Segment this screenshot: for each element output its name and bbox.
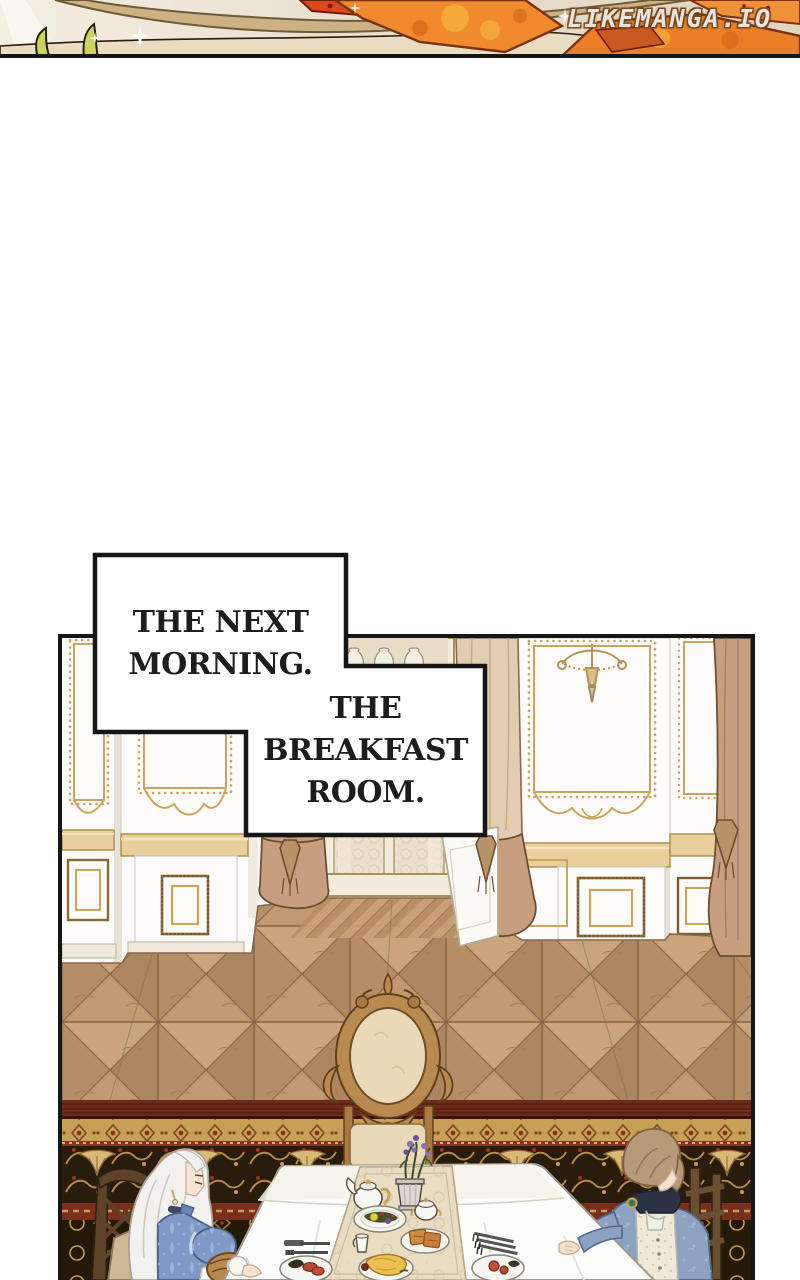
previous-panel-art: LIKEMANGA.IO bbox=[0, 0, 800, 58]
caption-breakfast-room: THE BREAKFAST ROOM. bbox=[248, 668, 483, 833]
toast-plate bbox=[401, 1229, 449, 1253]
watermark: LIKEMANGA.IO bbox=[567, 4, 772, 33]
salad-plate bbox=[354, 1206, 406, 1232]
manga-page: LIKEMANGA.IO bbox=[0, 0, 800, 1280]
omelette-plate bbox=[359, 1255, 413, 1280]
